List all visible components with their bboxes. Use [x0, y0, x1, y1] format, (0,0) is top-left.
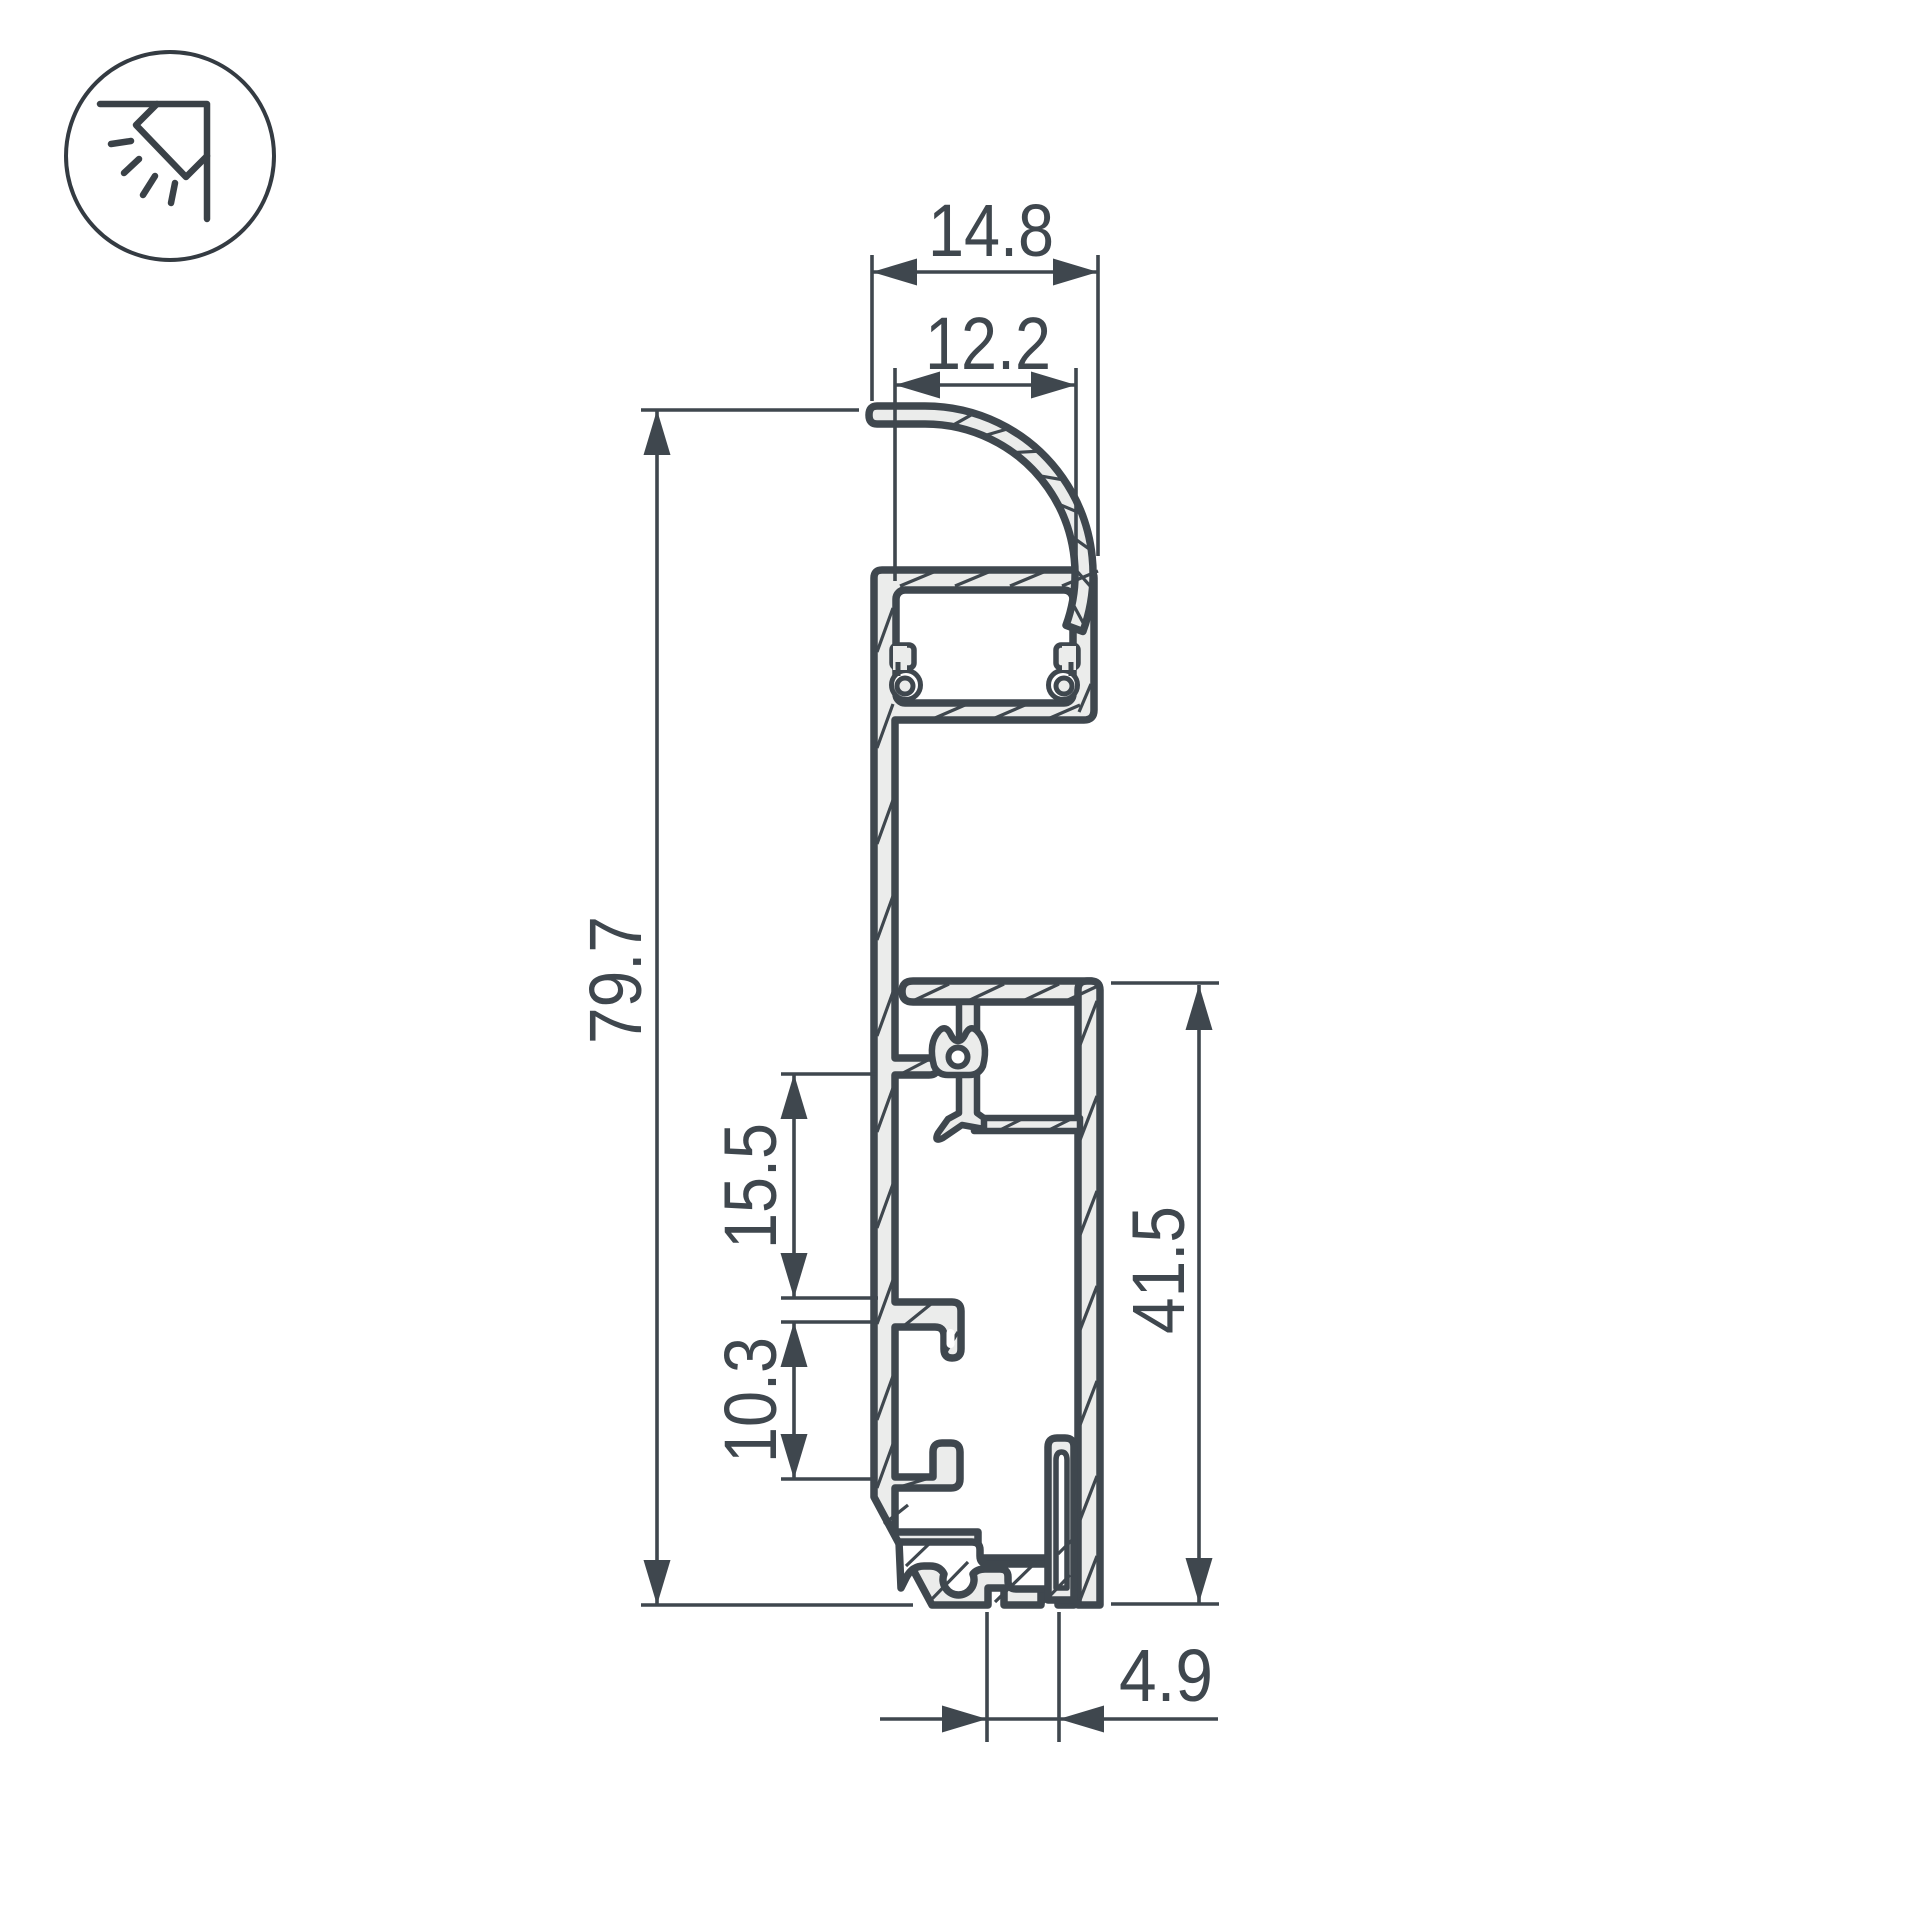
svg-text:14.8: 14.8 [928, 189, 1054, 272]
svg-text:15.5: 15.5 [709, 1123, 792, 1249]
svg-text:10.3: 10.3 [709, 1337, 792, 1463]
svg-text:4.9: 4.9 [1119, 1634, 1213, 1717]
svg-text:79.7: 79.7 [574, 916, 657, 1044]
svg-text:41.5: 41.5 [1117, 1206, 1200, 1334]
